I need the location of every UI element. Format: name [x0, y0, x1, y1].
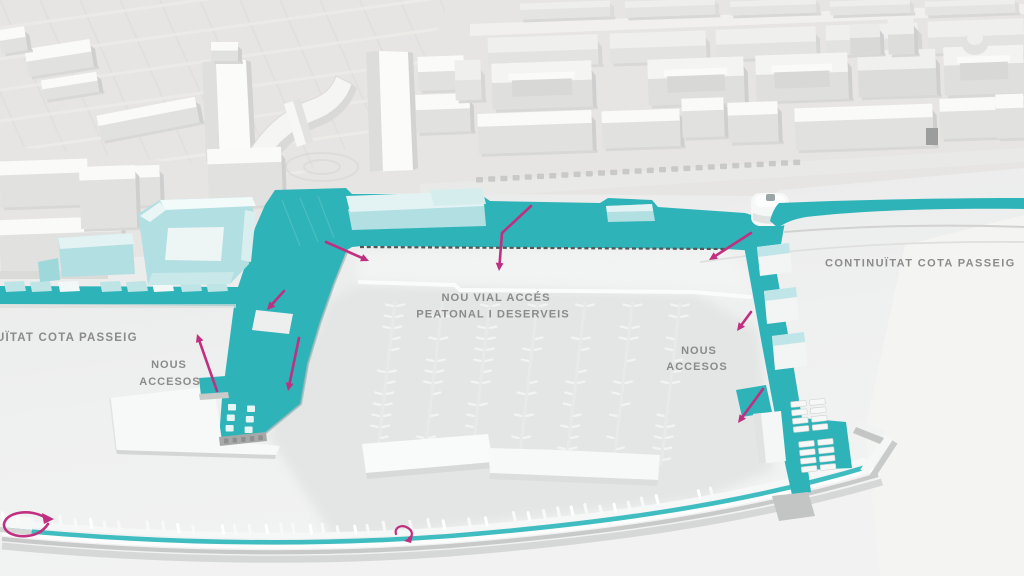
- svg-text:NOU VIAL ACCÉS: NOU VIAL ACCÉS: [441, 291, 550, 304]
- svg-text:UÏTAT COTA PASSEIG: UÏTAT COTA PASSEIG: [0, 331, 138, 344]
- svg-text:NOUS: NOUS: [151, 359, 187, 371]
- svg-text:ACCESOS: ACCESOS: [666, 361, 727, 373]
- svg-text:PEATONAL I DESERVEIS: PEATONAL I DESERVEIS: [416, 309, 569, 321]
- svg-text:CONTINUÏTAT COTA PASSEIG: CONTINUÏTAT COTA PASSEIG: [825, 257, 1016, 270]
- svg-text:NOUS: NOUS: [681, 345, 717, 357]
- svg-text:ACCESOS: ACCESOS: [139, 376, 200, 388]
